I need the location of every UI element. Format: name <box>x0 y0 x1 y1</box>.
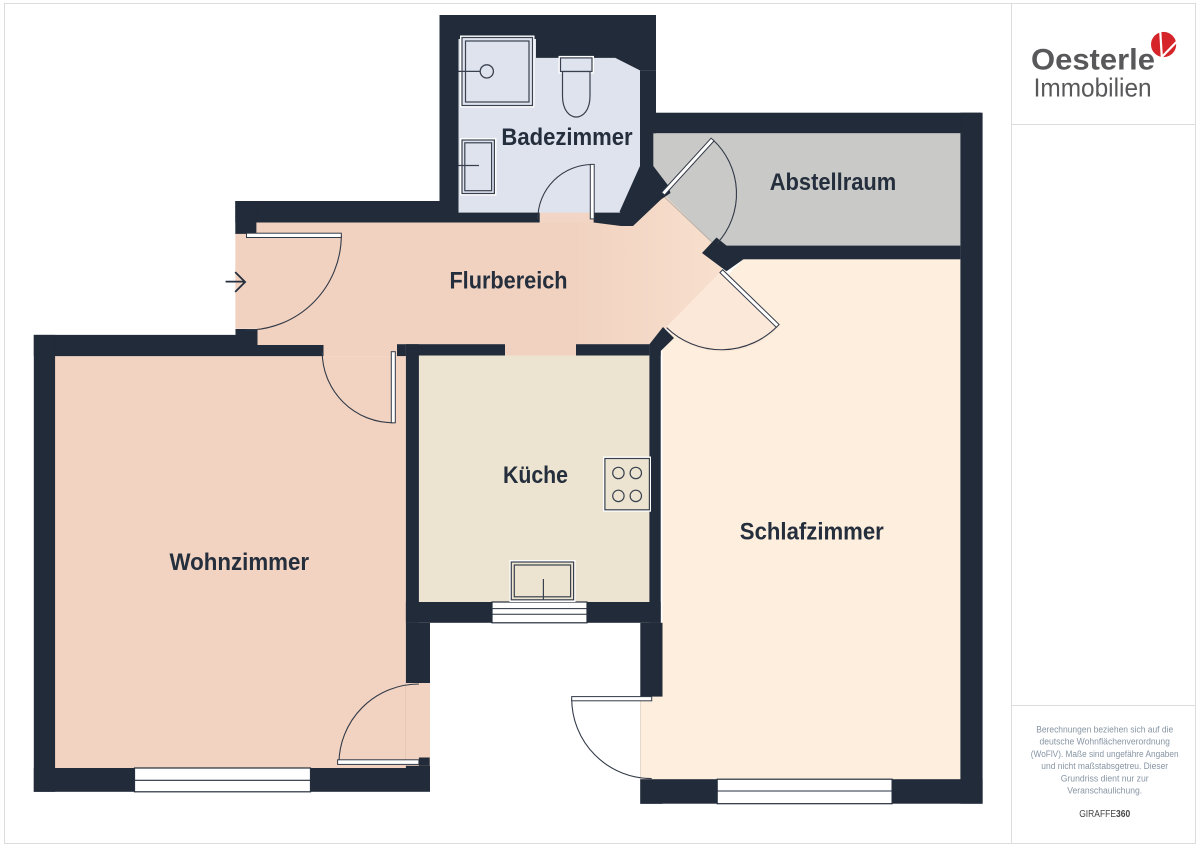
svg-text:Schlafzimmer: Schlafzimmer <box>740 519 884 546</box>
svg-text:GIRAFFE360: GIRAFFE360 <box>1079 809 1130 820</box>
svg-text:Veranschaulichung.: Veranschaulichung. <box>1067 786 1142 796</box>
svg-text:Küche: Küche <box>503 462 568 489</box>
svg-text:deutsche Wohnflächenverordnung: deutsche Wohnflächenverordnung <box>1039 737 1170 747</box>
svg-text:Badezimmer: Badezimmer <box>501 124 632 151</box>
svg-text:Wohnzimmer: Wohnzimmer <box>170 549 310 576</box>
svg-text:Flurbereich: Flurbereich <box>449 268 567 295</box>
svg-text:Grundriss dient nur zur: Grundriss dient nur zur <box>1061 773 1149 783</box>
svg-text:Immobilien: Immobilien <box>1034 73 1152 103</box>
svg-text:Abstellraum: Abstellraum <box>770 169 897 196</box>
svg-text:(WoFlV). Maße sind ungefähre A: (WoFlV). Maße sind ungefähre Angaben <box>1031 749 1179 759</box>
svg-text:und nicht maßstabsgetreu. Dies: und nicht maßstabsgetreu. Dieser <box>1041 761 1168 771</box>
svg-text:Berechnungen beziehen sich auf: Berechnungen beziehen sich auf die <box>1036 725 1173 735</box>
